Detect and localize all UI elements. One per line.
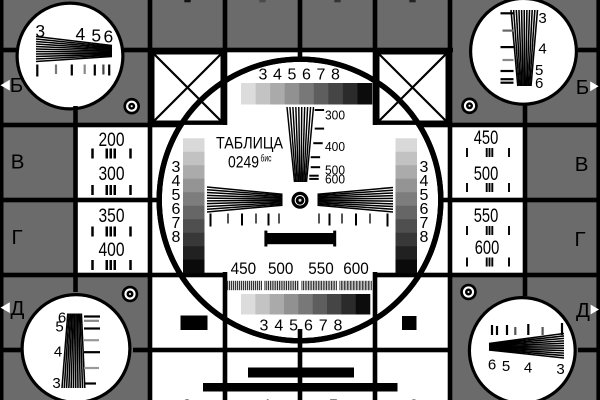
svg-text:В: В: [11, 151, 25, 174]
svg-text:500: 500: [268, 260, 294, 278]
svg-text:8: 8: [172, 229, 181, 246]
svg-text:8: 8: [334, 318, 343, 335]
svg-text:500: 500: [474, 163, 499, 185]
svg-text:550: 550: [308, 260, 334, 278]
svg-text:Д: Д: [11, 297, 25, 320]
svg-text:8: 8: [420, 229, 429, 246]
svg-text:4: 4: [524, 360, 532, 377]
svg-text:3: 3: [259, 67, 268, 84]
svg-text:300: 300: [99, 163, 125, 185]
svg-text:Г: Г: [11, 226, 22, 249]
svg-text:3: 3: [52, 375, 60, 392]
svg-text:4: 4: [274, 318, 283, 335]
svg-text:Г: Г: [574, 228, 585, 251]
svg-text:450: 450: [474, 127, 499, 149]
svg-text:4: 4: [538, 41, 546, 58]
svg-text:Б: Б: [10, 74, 23, 97]
svg-text:8: 8: [331, 67, 340, 84]
svg-text:В: В: [575, 153, 589, 176]
svg-text:5: 5: [329, 396, 338, 400]
svg-text:5: 5: [502, 358, 510, 375]
svg-text:600: 600: [325, 172, 345, 187]
svg-text:7: 7: [317, 67, 326, 84]
svg-text:300: 300: [325, 108, 345, 123]
svg-text:6: 6: [104, 27, 114, 47]
svg-text:350: 350: [99, 205, 125, 227]
svg-text:550: 550: [474, 205, 499, 227]
svg-text:6: 6: [409, 396, 418, 400]
svg-text:400: 400: [99, 239, 125, 261]
svg-text:5: 5: [289, 318, 298, 335]
svg-text:600: 600: [475, 237, 500, 259]
svg-text:4: 4: [54, 344, 62, 361]
svg-text:Б: Б: [576, 76, 589, 99]
svg-text:ТАБЛИЦА: ТАБЛИЦА: [216, 134, 284, 153]
svg-text:6: 6: [304, 318, 313, 335]
svg-text:4: 4: [76, 24, 86, 44]
svg-text:4: 4: [273, 67, 282, 84]
svg-text:200: 200: [99, 129, 125, 151]
svg-text:7: 7: [319, 318, 328, 335]
svg-text:450: 450: [231, 260, 257, 278]
svg-text:3: 3: [538, 10, 546, 27]
svg-text:5: 5: [288, 67, 297, 84]
svg-text:Д: Д: [576, 299, 590, 322]
svg-text:3: 3: [182, 396, 191, 400]
svg-text:0249: 0249: [228, 153, 259, 172]
svg-text:6: 6: [535, 75, 543, 92]
svg-text:бис: бис: [261, 153, 272, 165]
svg-text:3: 3: [260, 318, 269, 335]
svg-text:4: 4: [261, 396, 270, 400]
svg-text:6: 6: [488, 357, 496, 374]
svg-text:3: 3: [556, 361, 564, 378]
svg-text:600: 600: [343, 260, 369, 278]
svg-text:6: 6: [302, 67, 311, 84]
svg-text:400: 400: [325, 139, 345, 154]
svg-text:5: 5: [91, 26, 101, 46]
svg-text:3: 3: [35, 21, 45, 41]
svg-text:5: 5: [55, 319, 63, 336]
